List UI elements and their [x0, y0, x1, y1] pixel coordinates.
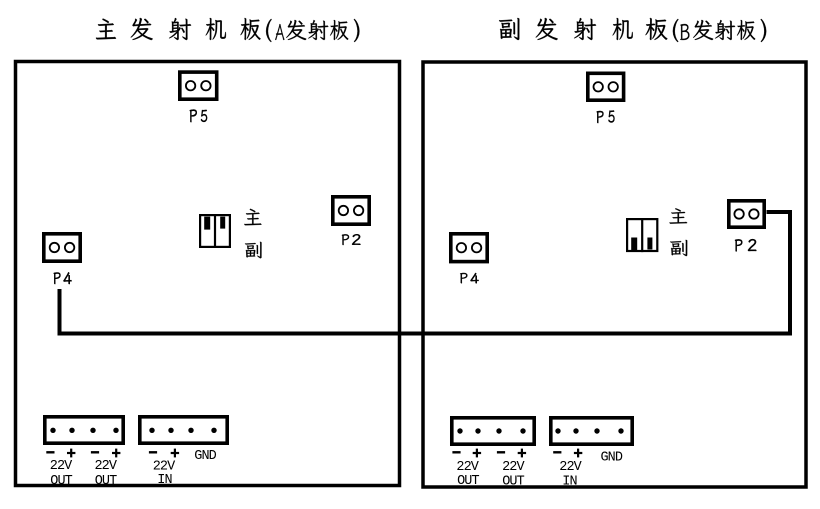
svg-text:GND: GND: [194, 449, 216, 464]
svg-text:OUT: OUT: [95, 474, 117, 489]
svg-text:22V: 22V: [94, 459, 117, 474]
svg-text:22V: 22V: [456, 460, 479, 475]
svg-text:IN: IN: [157, 473, 172, 488]
svg-text:22V: 22V: [50, 459, 73, 474]
svg-text:OUT: OUT: [502, 474, 524, 489]
svg-text:IN: IN: [562, 475, 577, 490]
svg-text:22V: 22V: [559, 460, 582, 475]
svg-text:OUT: OUT: [457, 474, 479, 489]
svg-text:22V: 22V: [502, 460, 525, 475]
svg-text:OUT: OUT: [50, 474, 72, 489]
svg-text:GND: GND: [600, 450, 622, 465]
